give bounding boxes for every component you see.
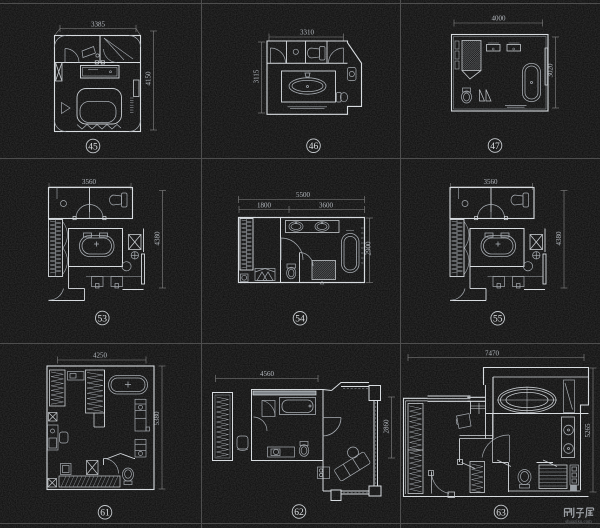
svg-text:7470: 7470 bbox=[485, 350, 500, 358]
svg-text:4000: 4000 bbox=[492, 15, 507, 23]
svg-text:3560: 3560 bbox=[484, 178, 499, 186]
svg-text:46: 46 bbox=[309, 142, 319, 152]
svg-text:54: 54 bbox=[295, 315, 305, 325]
svg-text:2900: 2900 bbox=[365, 241, 373, 256]
svg-text:5500: 5500 bbox=[296, 191, 311, 199]
svg-text:47: 47 bbox=[490, 142, 500, 152]
svg-text:3600: 3600 bbox=[319, 202, 334, 210]
svg-text:3310: 3310 bbox=[300, 29, 315, 37]
svg-text:3560: 3560 bbox=[82, 178, 97, 186]
svg-text:4250: 4250 bbox=[93, 352, 108, 360]
svg-text:3385: 3385 bbox=[91, 21, 106, 29]
svg-text:53: 53 bbox=[98, 314, 108, 324]
svg-text:61: 61 bbox=[100, 509, 110, 519]
svg-text:55: 55 bbox=[493, 315, 503, 325]
svg-text:4380: 4380 bbox=[555, 231, 563, 246]
svg-text:3115: 3115 bbox=[253, 69, 261, 83]
svg-text:5265: 5265 bbox=[584, 423, 592, 438]
svg-text:4380: 4380 bbox=[154, 231, 162, 246]
svg-text:63: 63 bbox=[496, 508, 506, 518]
svg-text:2860: 2860 bbox=[383, 419, 391, 434]
svg-text:62: 62 bbox=[294, 508, 304, 518]
svg-text:shuaziku.com: shuaziku.com bbox=[565, 520, 592, 525]
svg-text:45: 45 bbox=[88, 142, 98, 152]
svg-text:1800: 1800 bbox=[257, 202, 272, 210]
svg-text:4150: 4150 bbox=[145, 71, 153, 86]
svg-text:4560: 4560 bbox=[260, 370, 275, 378]
